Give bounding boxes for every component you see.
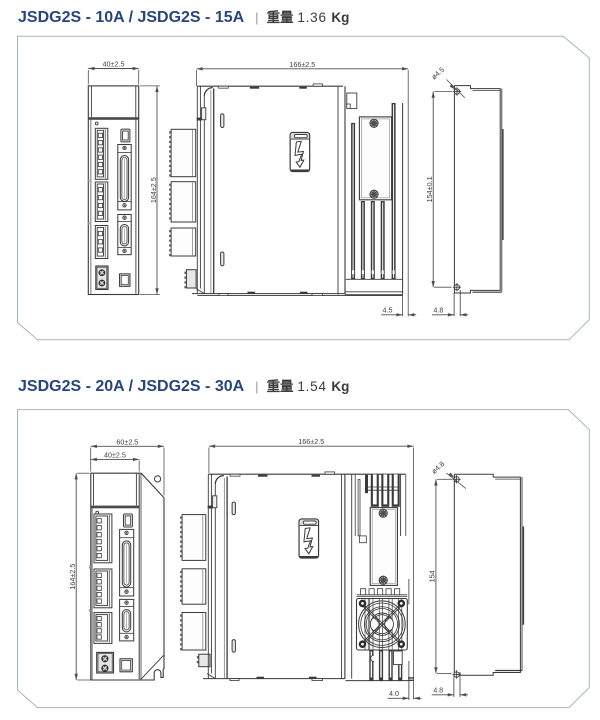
svg-text:164±2.5: 164±2.5 (68, 564, 77, 590)
svg-text:154±0.1: 154±0.1 (425, 176, 434, 202)
svg-text:4.8: 4.8 (433, 306, 443, 315)
svg-text:60±2.5: 60±2.5 (116, 437, 138, 446)
svg-text:ø4.5: ø4.5 (429, 65, 446, 81)
svg-text:ø4.8: ø4.8 (430, 459, 447, 475)
svg-text:40±2.5: 40±2.5 (103, 60, 125, 69)
svg-text:4.5: 4.5 (383, 306, 393, 315)
svg-text:166±2.5: 166±2.5 (289, 60, 315, 69)
svg-text:4.8: 4.8 (433, 686, 443, 695)
svg-text:40±2.5: 40±2.5 (104, 450, 126, 459)
svg-text:4.0: 4.0 (389, 689, 399, 698)
svg-text:166±2.5: 166±2.5 (298, 437, 324, 446)
svg-text:154: 154 (428, 570, 437, 582)
svg-text:164±2.5: 164±2.5 (149, 177, 158, 203)
